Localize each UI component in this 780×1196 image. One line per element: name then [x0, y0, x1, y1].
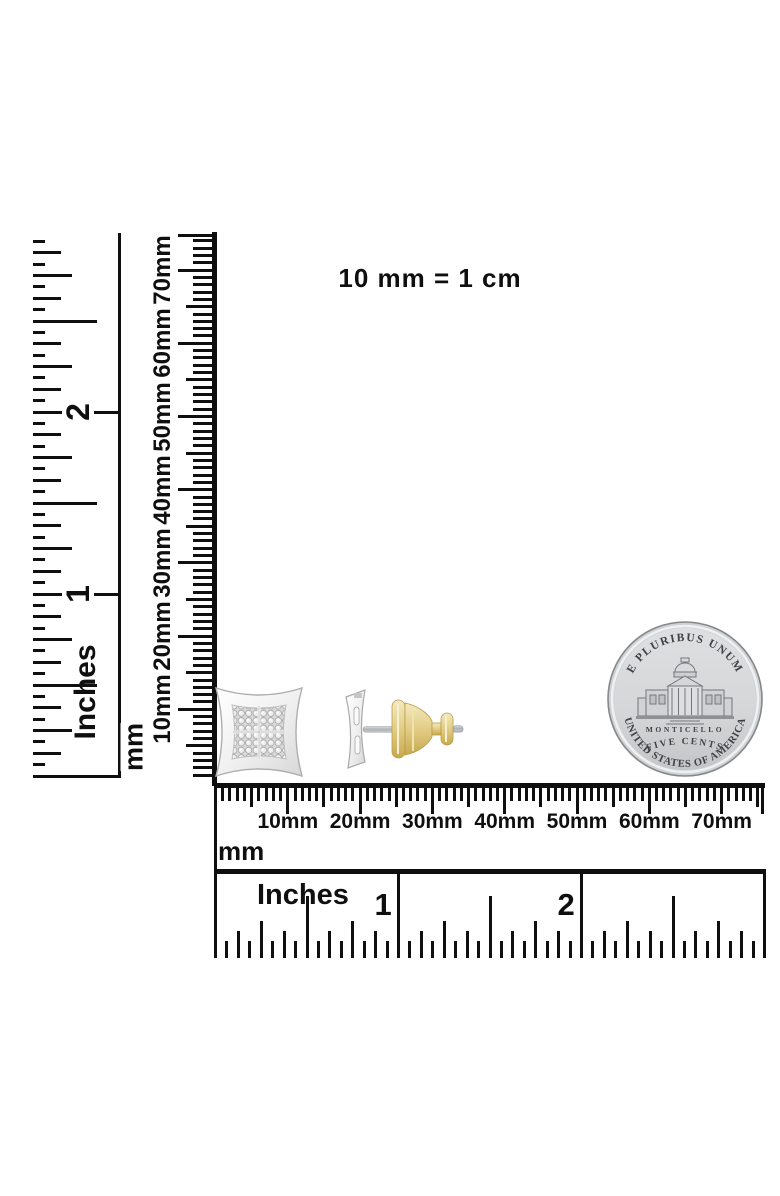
tick — [306, 896, 309, 958]
tick — [228, 788, 231, 801]
tick — [193, 539, 212, 542]
tick — [496, 788, 499, 801]
tick — [193, 386, 212, 389]
tick — [33, 308, 45, 311]
tick — [193, 583, 212, 586]
tick — [178, 488, 212, 491]
tick — [33, 718, 45, 721]
tick — [443, 921, 446, 958]
tick — [655, 788, 658, 801]
tick — [713, 788, 716, 801]
tick — [33, 661, 61, 664]
horizontal-mm-label: 50mm — [542, 811, 612, 832]
tick — [225, 941, 228, 958]
tick — [33, 740, 45, 743]
tick — [193, 356, 212, 359]
tick — [271, 941, 274, 958]
tick — [33, 445, 45, 448]
tick — [33, 297, 61, 300]
tick — [534, 921, 537, 958]
tick — [698, 788, 701, 801]
tick — [402, 788, 405, 801]
tick — [193, 430, 212, 433]
tick — [752, 941, 755, 958]
vertical-mm-label: 70mm — [151, 235, 175, 304]
tick — [193, 517, 212, 520]
tick — [409, 788, 412, 801]
tick — [33, 502, 97, 505]
horizontal-mm-label: 20mm — [325, 811, 395, 832]
tick — [322, 788, 325, 807]
tick — [523, 941, 526, 958]
tick — [477, 941, 480, 958]
tick — [374, 931, 377, 958]
tick — [250, 788, 253, 807]
tick — [33, 456, 72, 459]
tick — [727, 788, 730, 801]
tick — [33, 547, 72, 550]
tick — [740, 931, 743, 958]
tick — [193, 605, 212, 608]
tick — [193, 327, 212, 330]
tick — [33, 524, 61, 527]
tick — [33, 490, 45, 493]
tick — [637, 941, 640, 958]
horizontal-inches-unit-label: Inches — [257, 881, 349, 910]
tick — [178, 234, 212, 237]
horizontal-inch-number: 2 — [558, 889, 575, 920]
tick — [193, 408, 212, 411]
tick — [33, 365, 72, 368]
tick — [193, 591, 212, 594]
tick — [344, 788, 347, 801]
tick — [248, 941, 251, 958]
earrings-illustration — [208, 680, 468, 780]
tick — [453, 788, 456, 801]
tick — [511, 931, 514, 958]
tick — [603, 931, 606, 958]
tick — [386, 941, 389, 958]
tick — [366, 788, 369, 801]
tick — [33, 684, 97, 687]
tick — [193, 510, 212, 513]
tick — [265, 788, 268, 801]
tick — [735, 788, 738, 801]
vertical-inches-unit-label: Inches — [71, 644, 101, 739]
tick — [591, 941, 594, 958]
tick — [706, 941, 709, 958]
tick — [178, 342, 212, 345]
tick — [193, 649, 212, 652]
scale-note: 10 mm = 1 cm — [330, 263, 530, 294]
tick — [33, 752, 61, 755]
tick — [669, 788, 672, 801]
tick — [612, 788, 615, 807]
tick — [193, 371, 212, 374]
tick — [761, 788, 764, 814]
tick — [193, 313, 212, 316]
tick — [583, 788, 586, 801]
tick — [33, 240, 45, 243]
tick — [569, 941, 572, 958]
tick — [683, 941, 686, 958]
tick — [649, 931, 652, 958]
tick — [460, 788, 463, 801]
tick — [33, 581, 45, 584]
tick — [677, 788, 680, 801]
tick — [33, 285, 45, 288]
tick — [729, 941, 732, 958]
tick — [193, 444, 212, 447]
tick — [193, 642, 212, 645]
tick — [283, 931, 286, 958]
tick — [193, 503, 212, 506]
tick — [33, 274, 72, 277]
tick — [408, 941, 411, 958]
tick — [742, 788, 745, 801]
tick — [294, 788, 297, 801]
tick — [193, 393, 212, 396]
tick — [518, 788, 521, 801]
tick — [186, 598, 212, 601]
tick — [626, 788, 629, 801]
tick — [33, 263, 45, 266]
tick — [33, 638, 72, 641]
stud-earring-side — [346, 690, 463, 768]
tick — [33, 399, 45, 402]
tick — [717, 921, 720, 958]
tick — [33, 513, 45, 516]
nickel-coin: E PLURIBUS UNUM UNITED STATES OF AMERICA… — [606, 620, 772, 786]
tick — [186, 671, 212, 674]
tick — [328, 931, 331, 958]
tick — [193, 627, 212, 630]
tick — [546, 941, 549, 958]
tick — [214, 869, 217, 958]
tick — [193, 247, 212, 250]
vertical-mm-label: 10mm — [151, 675, 175, 744]
tick — [33, 649, 45, 652]
tick — [33, 433, 61, 436]
tick — [706, 788, 709, 801]
tick — [590, 788, 593, 801]
tick — [193, 400, 212, 403]
coin-building-name: MONTICELLO — [646, 725, 725, 734]
tick — [193, 298, 212, 301]
tick — [193, 320, 212, 323]
horizontal-mm-unit-label: mm — [218, 838, 264, 864]
tick — [186, 378, 212, 381]
tick — [301, 788, 304, 801]
vertical-inches-baseline — [118, 233, 121, 778]
horizontal-mm-label: 60mm — [614, 811, 684, 832]
tick — [445, 788, 448, 801]
tick — [33, 354, 45, 357]
tick — [243, 788, 246, 801]
tick — [33, 604, 45, 607]
tick — [597, 788, 600, 801]
tick — [33, 775, 120, 778]
tick — [749, 788, 752, 801]
tick — [186, 452, 212, 455]
tick — [193, 283, 212, 286]
tick — [193, 261, 212, 264]
tick — [438, 788, 441, 801]
tick — [431, 941, 434, 958]
tick — [568, 788, 571, 801]
tick — [193, 239, 212, 242]
tick — [33, 536, 45, 539]
vertical-mm-label: 50mm — [151, 382, 175, 451]
tick — [561, 788, 564, 801]
tick — [33, 570, 61, 573]
tick — [33, 331, 45, 334]
tick — [33, 376, 45, 379]
tick — [33, 695, 45, 698]
vertical-inch-number: 1 — [62, 582, 94, 606]
tick — [619, 788, 622, 801]
product-sizing-image: Inches 12 mm 10mm20mm30mm40mm50mm60mm70m… — [0, 0, 780, 1196]
tick — [397, 869, 400, 958]
tick — [193, 554, 212, 557]
tick — [351, 788, 354, 801]
tick — [373, 788, 376, 801]
tick — [257, 788, 260, 801]
tick — [416, 788, 419, 801]
horizontal-mm-label: 40mm — [470, 811, 540, 832]
tick — [424, 788, 427, 801]
tick — [193, 334, 212, 337]
tick — [660, 941, 663, 958]
tick — [294, 941, 297, 958]
tick — [33, 672, 45, 675]
tick — [539, 788, 542, 807]
tick — [420, 931, 423, 958]
tick — [193, 466, 212, 469]
tick — [380, 788, 383, 801]
tick — [395, 788, 398, 807]
tick — [33, 467, 45, 470]
tick — [363, 941, 366, 958]
tick — [317, 941, 320, 958]
tick — [193, 291, 212, 294]
tick — [626, 921, 629, 958]
vertical-mm-label: 30mm — [151, 528, 175, 597]
tick — [193, 276, 212, 279]
tick — [193, 620, 212, 623]
tick — [33, 251, 61, 254]
horizontal-mm-label: 70mm — [687, 811, 757, 832]
tick — [315, 788, 318, 801]
vertical-mm-label: 40mm — [151, 455, 175, 524]
tick — [763, 869, 766, 958]
tick — [193, 664, 212, 667]
tick — [221, 788, 224, 801]
tick — [193, 496, 212, 499]
vertical-inch-number: 2 — [62, 400, 94, 424]
tick — [547, 788, 550, 801]
tick — [178, 561, 212, 564]
tick — [33, 422, 45, 425]
tick — [33, 342, 61, 345]
earring-back — [392, 700, 453, 758]
tick — [193, 481, 212, 484]
tick — [193, 576, 212, 579]
tick — [193, 613, 212, 616]
tick — [33, 479, 61, 482]
vertical-mm-unit-label: mm — [121, 723, 148, 771]
tick — [672, 896, 675, 958]
tick — [466, 931, 469, 958]
tick — [193, 364, 212, 367]
tick — [510, 788, 513, 801]
tick — [330, 788, 333, 801]
tick — [33, 388, 61, 391]
tick — [33, 763, 45, 766]
horizontal-inches-topline — [214, 869, 765, 874]
tick — [178, 415, 212, 418]
tick — [193, 349, 212, 352]
tick — [178, 635, 212, 638]
tick — [532, 788, 535, 801]
tick — [662, 788, 665, 801]
tick — [340, 941, 343, 958]
tick — [684, 788, 687, 807]
tick — [193, 437, 212, 440]
tick — [193, 459, 212, 462]
tick — [641, 788, 644, 801]
tick — [554, 788, 557, 801]
tick — [633, 788, 636, 801]
tick — [308, 788, 311, 801]
tick — [756, 788, 759, 807]
tick — [33, 706, 61, 709]
tick — [193, 657, 212, 660]
tick — [388, 788, 391, 801]
tick — [186, 525, 212, 528]
tick — [454, 941, 457, 958]
tick — [500, 941, 503, 958]
tick — [33, 615, 61, 618]
tick — [260, 921, 263, 958]
horizontal-mm-label: 10mm — [253, 811, 323, 832]
tick — [474, 788, 477, 801]
tick — [691, 788, 694, 801]
tick — [193, 547, 212, 550]
tick — [272, 788, 275, 801]
tick — [279, 788, 282, 801]
tick — [33, 729, 72, 732]
stud-earring-front — [216, 688, 302, 776]
tick — [237, 931, 240, 958]
tick — [193, 254, 212, 257]
horizontal-inch-number: 1 — [375, 889, 392, 920]
tick — [193, 532, 212, 535]
tick — [193, 474, 212, 477]
tick — [193, 569, 212, 572]
tick — [178, 708, 212, 711]
tick — [186, 305, 212, 308]
tick — [467, 788, 470, 807]
vertical-mm-label: 20mm — [151, 601, 175, 670]
tick — [236, 788, 239, 801]
tick — [614, 941, 617, 958]
tick — [489, 896, 492, 958]
tick — [178, 269, 212, 272]
tick — [482, 788, 485, 801]
tick — [351, 921, 354, 958]
tick — [337, 788, 340, 801]
tick — [193, 422, 212, 425]
vertical-mm-label: 60mm — [151, 309, 175, 378]
tick — [580, 869, 583, 958]
tick — [33, 320, 97, 323]
tick — [33, 627, 45, 630]
tick — [489, 788, 492, 801]
tick — [33, 558, 45, 561]
horizontal-mm-label: 30mm — [397, 811, 467, 832]
tick — [604, 788, 607, 801]
tick — [525, 788, 528, 801]
tick — [557, 931, 560, 958]
tick — [694, 931, 697, 958]
